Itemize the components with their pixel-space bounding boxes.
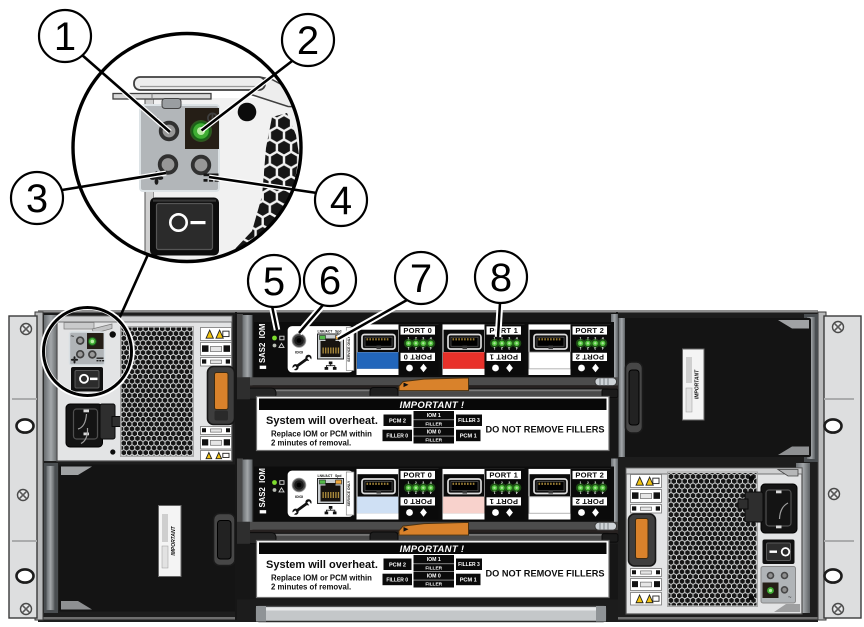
svg-text:4: 4 <box>430 490 432 494</box>
svg-text:PORT 1: PORT 1 <box>489 352 518 361</box>
svg-text:PCM 1: PCM 1 <box>460 433 477 439</box>
svg-text:4: 4 <box>516 490 518 494</box>
svg-text:2: 2 <box>587 346 589 350</box>
svg-text:4: 4 <box>602 346 604 350</box>
svg-text:2: 2 <box>501 490 503 494</box>
svg-text:2: 2 <box>415 346 417 350</box>
svg-text:Spd: Spd <box>335 474 341 478</box>
svg-text:2: 2 <box>501 346 503 350</box>
svg-text:DO NOT REMOVE FILLERS: DO NOT REMOVE FILLERS <box>486 425 605 435</box>
svg-text:1: 1 <box>580 490 582 494</box>
svg-text:PORT 0: PORT 0 <box>403 352 432 361</box>
svg-text:PORT 0: PORT 0 <box>403 326 432 335</box>
svg-text:8: 8 <box>490 256 512 300</box>
svg-text:IMPORTANT !: IMPORTANT ! <box>400 544 465 555</box>
svg-text:3: 3 <box>422 346 424 350</box>
svg-text:IOM 1: IOM 1 <box>427 557 441 563</box>
svg-text:DO NOT REMOVE FILLERS: DO NOT REMOVE FILLERS <box>486 569 605 579</box>
svg-text:FILLER: FILLER <box>425 565 442 571</box>
svg-text:3: 3 <box>508 346 510 350</box>
svg-text:3: 3 <box>594 346 596 350</box>
svg-text:Spd: Spd <box>335 330 341 334</box>
svg-text:2: 2 <box>587 490 589 494</box>
svg-text:PORT 1: PORT 1 <box>489 497 518 506</box>
svg-text:~: ~ <box>71 334 75 341</box>
svg-text:FILLER: FILLER <box>425 438 442 444</box>
svg-text:LNK/ACT: LNK/ACT <box>318 330 334 334</box>
svg-text:FILLER: FILLER <box>425 421 442 427</box>
svg-text:1: 1 <box>54 15 76 59</box>
svg-text:3: 3 <box>422 490 424 494</box>
svg-text:▮ SAS2 IOM: ▮ SAS2 IOM <box>258 324 267 370</box>
svg-text:7: 7 <box>410 257 432 301</box>
svg-text:4: 4 <box>430 346 432 350</box>
svg-text:1: 1 <box>494 490 496 494</box>
svg-text:PCM 2: PCM 2 <box>389 562 406 568</box>
svg-text:FILLER: FILLER <box>425 582 442 588</box>
svg-text:~: ~ <box>788 595 792 601</box>
svg-text:IOIOI: IOIOI <box>295 351 304 355</box>
svg-text:LNK/ACT: LNK/ACT <box>318 474 334 478</box>
svg-text:System will overheat.: System will overheat. <box>266 415 378 427</box>
svg-text:4: 4 <box>516 346 518 350</box>
svg-text:FILLER 0: FILLER 0 <box>386 577 408 583</box>
svg-text:FILLER 3: FILLER 3 <box>458 418 480 424</box>
svg-text:3: 3 <box>508 490 510 494</box>
svg-text:PORT 2: PORT 2 <box>575 352 604 361</box>
svg-text:2 minutes of removal.: 2 minutes of removal. <box>271 583 351 592</box>
svg-text:1: 1 <box>408 346 410 350</box>
svg-text:1: 1 <box>494 346 496 350</box>
svg-text:▮ SAS2 IOM: ▮ SAS2 IOM <box>258 468 267 514</box>
svg-text:3: 3 <box>594 490 596 494</box>
svg-text:IMPORTANT !: IMPORTANT ! <box>400 400 465 411</box>
svg-text:6: 6 <box>319 259 341 303</box>
svg-text:1: 1 <box>408 490 410 494</box>
svg-text:Replace IOM or PCM within: Replace IOM or PCM within <box>271 430 372 439</box>
svg-text:2: 2 <box>415 490 417 494</box>
svg-text:Replace IOM or PCM within: Replace IOM or PCM within <box>271 574 372 583</box>
svg-text:SERVICE ONLY: SERVICE ONLY <box>347 480 351 506</box>
svg-text:IOM 1: IOM 1 <box>427 413 441 419</box>
svg-text:PORT 0: PORT 0 <box>403 497 432 506</box>
svg-text:3: 3 <box>26 177 48 221</box>
svg-text:IOIOI: IOIOI <box>295 495 304 499</box>
svg-text:PCM 2: PCM 2 <box>389 418 406 424</box>
svg-text:SERVICE ONLY: SERVICE ONLY <box>347 336 351 362</box>
svg-text:IMPORTANT: IMPORTANT <box>695 369 701 399</box>
svg-text:FILLER 3: FILLER 3 <box>458 562 480 568</box>
svg-text:System will overheat.: System will overheat. <box>266 559 378 571</box>
svg-text:2: 2 <box>297 19 319 63</box>
svg-text:IMPORTANT: IMPORTANT <box>171 525 177 555</box>
svg-text:PORT 1: PORT 1 <box>489 326 518 335</box>
svg-text:2 minutes of removal.: 2 minutes of removal. <box>271 439 351 448</box>
svg-text:PCM 1: PCM 1 <box>460 577 477 583</box>
svg-text:PORT 0: PORT 0 <box>403 471 432 480</box>
svg-text:IOM 0: IOM 0 <box>427 430 441 436</box>
svg-text:IOM 0: IOM 0 <box>427 574 441 580</box>
svg-text:PORT 2: PORT 2 <box>575 471 604 480</box>
svg-text:5: 5 <box>263 260 285 304</box>
svg-text:4: 4 <box>330 179 352 223</box>
svg-text:PORT 1: PORT 1 <box>489 471 518 480</box>
svg-text:1: 1 <box>580 346 582 350</box>
svg-text:PORT 2: PORT 2 <box>575 497 604 506</box>
svg-text:4: 4 <box>602 490 604 494</box>
svg-text:FILLER 0: FILLER 0 <box>386 433 408 439</box>
svg-text:PORT 2: PORT 2 <box>575 326 604 335</box>
